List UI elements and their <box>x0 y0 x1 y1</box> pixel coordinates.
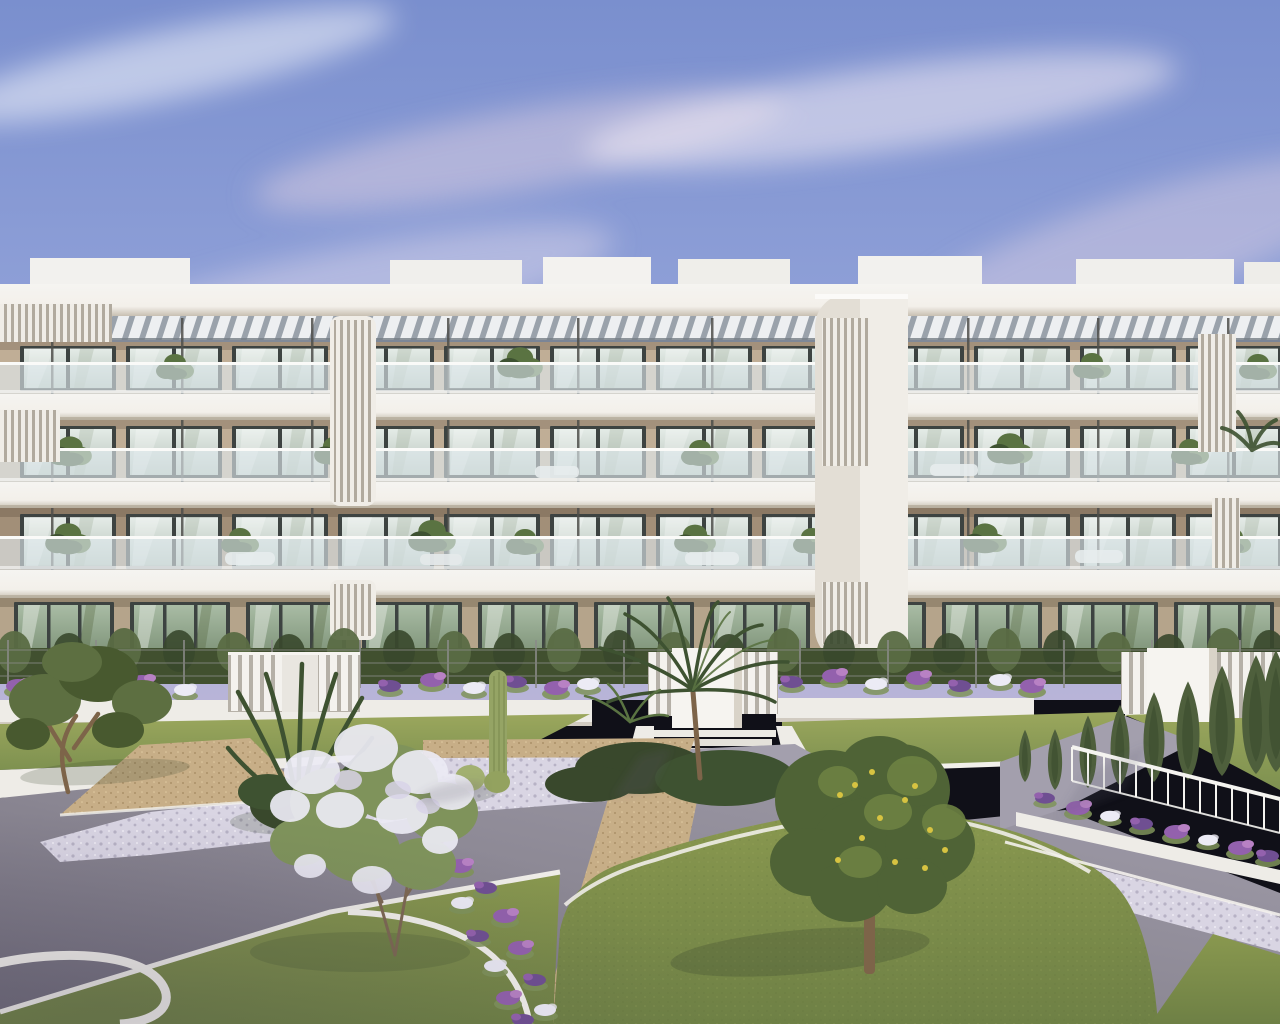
stair-tower-left <box>330 316 376 640</box>
glass-balustrades <box>0 362 1280 570</box>
louver-screen-right-lower <box>1212 498 1240 568</box>
roof-parapet <box>0 284 1280 316</box>
render-canvas <box>0 0 1280 1024</box>
stair-tower-center <box>815 294 908 662</box>
louver-screen-top-left <box>0 304 112 342</box>
louver-screen-right-upper <box>1198 334 1236 452</box>
louver-screen-left <box>0 410 60 462</box>
garden <box>0 598 1280 1024</box>
pergola-louvers <box>0 316 1280 340</box>
architectural-render <box>0 0 1280 1024</box>
apartment-building <box>0 256 1280 662</box>
dusk-vignette <box>0 620 1280 1024</box>
